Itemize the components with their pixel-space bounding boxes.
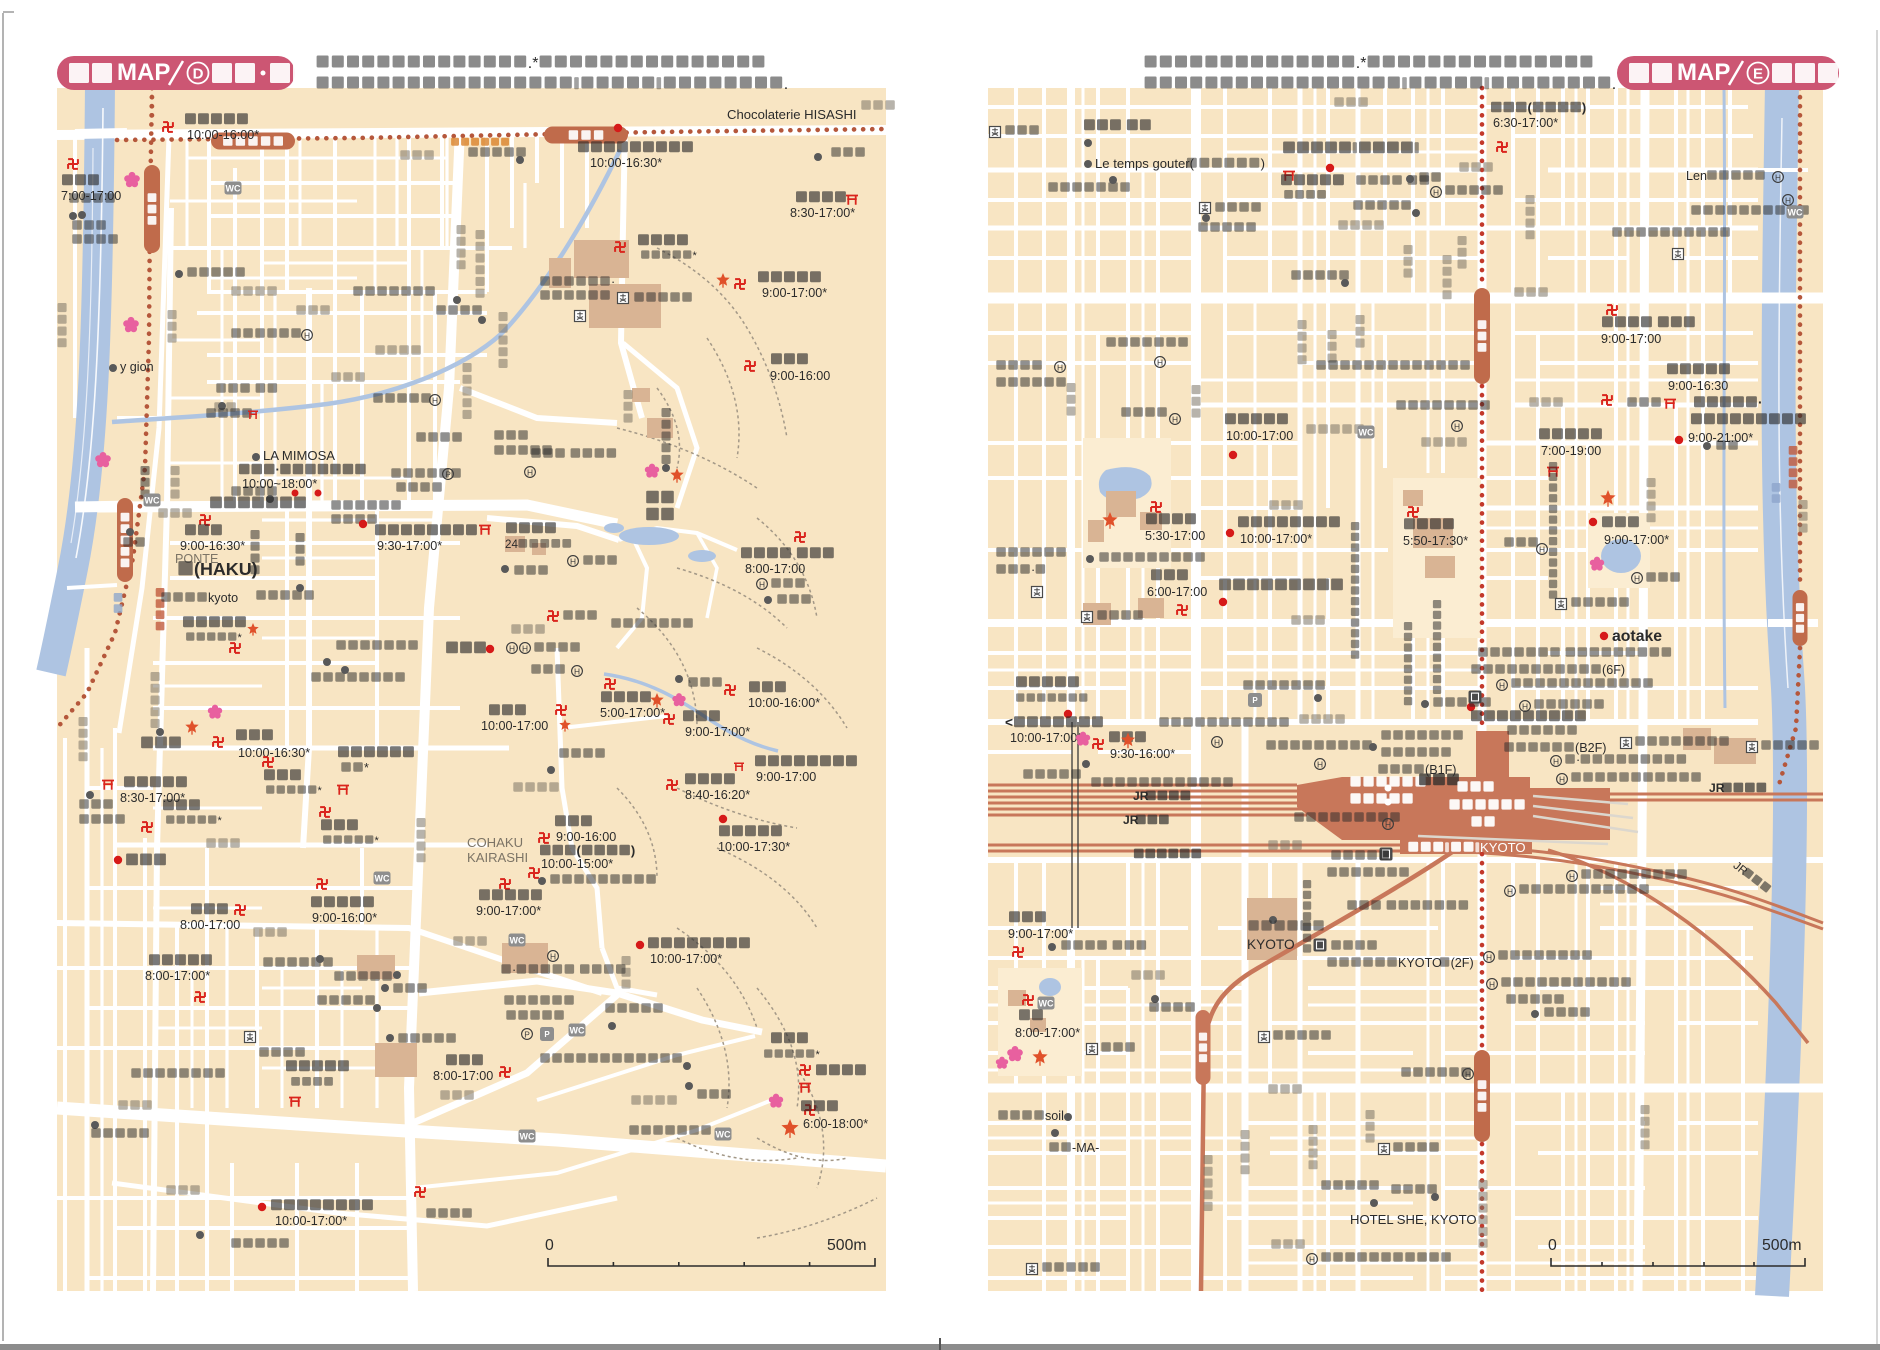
svg-text:9:00-16:00: 9:00-16:00: [770, 369, 830, 383]
svg-text:H: H: [1569, 871, 1575, 881]
svg-text:6:00-18:00*: 6:00-18:00*: [803, 1117, 868, 1131]
svg-text:KAIRASHI: KAIRASHI: [467, 850, 528, 865]
svg-text:9:00-17:00*: 9:00-17:00*: [1604, 533, 1669, 547]
svg-text:H: H: [1317, 759, 1323, 769]
svg-text:H: H: [1785, 195, 1791, 205]
svg-text:H: H: [432, 395, 438, 405]
svg-text:(2F): (2F): [1451, 956, 1474, 970]
svg-text:E: E: [1753, 66, 1763, 83]
svg-text:·: ·: [512, 963, 516, 977]
svg-text:9:30-16:00*: 9:30-16:00*: [1110, 747, 1175, 761]
svg-text:9:30-17:00*: 9:30-17:00*: [377, 539, 442, 553]
svg-text:H: H: [1559, 774, 1565, 784]
svg-text:8:00-17:00: 8:00-17:00: [745, 562, 805, 576]
svg-text:H: H: [759, 579, 765, 589]
svg-text:(6F): (6F): [1602, 663, 1625, 677]
svg-text:LA MIMOSA: LA MIMOSA: [263, 448, 335, 463]
svg-text:P: P: [1252, 696, 1258, 705]
svg-text:): ): [1261, 156, 1265, 171]
svg-text:MAP: MAP: [1677, 59, 1730, 86]
svg-text:kyoto: kyoto: [208, 591, 238, 605]
svg-text:9:00-16:30*: 9:00-16:30*: [180, 539, 245, 553]
svg-text:P: P: [524, 1029, 530, 1039]
svg-text:9:00-16:00: 9:00-16:00: [556, 830, 616, 844]
svg-text:10:00-17:00*: 10:00-17:00*: [650, 952, 722, 966]
svg-text:H: H: [1385, 819, 1391, 829]
svg-text:y gion: y gion: [120, 360, 154, 374]
svg-text:*: *: [375, 835, 380, 847]
svg-text:9:00-16:00*: 9:00-16:00*: [312, 911, 377, 925]
svg-text:10:00-16:30*: 10:00-16:30*: [238, 746, 310, 760]
svg-text:8:00-17:00*: 8:00-17:00*: [1015, 1026, 1080, 1040]
svg-text:10:00-17:00*: 10:00-17:00*: [275, 1214, 347, 1228]
svg-text:*: *: [218, 815, 223, 827]
svg-text:H: H: [1775, 172, 1781, 182]
svg-text:.*: .*: [1356, 55, 1367, 72]
svg-text:Le temps gouter(: Le temps gouter(: [1095, 156, 1195, 171]
svg-text:<: <: [1005, 715, 1013, 730]
svg-text:*: *: [238, 632, 243, 644]
svg-text:8:30-17:00*: 8:30-17:00*: [120, 791, 185, 805]
svg-text:H: H: [1522, 701, 1528, 711]
svg-text:8:30-17:00*: 8:30-17:00*: [790, 206, 855, 220]
svg-text:H: H: [509, 643, 515, 653]
svg-text:): ): [631, 843, 635, 858]
svg-text:9:00-17:00*: 9:00-17:00*: [1008, 927, 1073, 941]
svg-text:500m: 500m: [1762, 1237, 1802, 1254]
svg-text:COHAKU: COHAKU: [467, 835, 523, 850]
svg-text:10:00~18:00*: 10:00~18:00*: [242, 477, 317, 491]
svg-text:·: ·: [1031, 563, 1035, 577]
svg-text:·: ·: [611, 275, 615, 289]
svg-text:5:50-17:30*: 5:50-17:30*: [1403, 534, 1468, 548]
svg-text:.*: .*: [528, 55, 539, 72]
svg-text:WC: WC: [375, 874, 390, 884]
svg-text:WC: WC: [145, 496, 160, 506]
svg-text:D: D: [193, 66, 204, 83]
svg-text:): ): [1582, 100, 1586, 115]
svg-text:WC: WC: [570, 1026, 585, 1036]
svg-text:WC: WC: [716, 1130, 731, 1140]
svg-text:WC: WC: [1359, 428, 1374, 438]
svg-text:H: H: [1433, 187, 1439, 197]
svg-text:9:00-17:00*: 9:00-17:00*: [476, 904, 541, 918]
svg-text:H: H: [574, 666, 580, 676]
svg-text:·: ·: [1576, 753, 1580, 767]
svg-text:-MA-: -MA-: [1072, 1141, 1099, 1155]
svg-text:Chocolaterie HISASHI: Chocolaterie HISASHI: [727, 107, 857, 122]
svg-text:10:00-15:00*: 10:00-15:00*: [541, 857, 613, 871]
svg-text:H: H: [1499, 680, 1505, 690]
svg-text:5:30-17:00: 5:30-17:00: [1145, 529, 1205, 543]
svg-text:H: H: [1539, 544, 1545, 554]
svg-text:H: H: [1454, 421, 1460, 431]
svg-text:10:00-16:30*: 10:00-16:30*: [590, 156, 662, 170]
svg-text:H: H: [550, 951, 556, 961]
svg-text:WC: WC: [510, 936, 525, 946]
svg-text:9:00-17:00*: 9:00-17:00*: [762, 286, 827, 300]
svg-text:(: (: [1528, 100, 1533, 115]
svg-text:10:00-17:30*: 10:00-17:30*: [718, 840, 790, 854]
svg-text:9:00-17:00: 9:00-17:00: [756, 770, 816, 784]
svg-text:9:00-17:00*: 9:00-17:00*: [685, 725, 750, 739]
svg-text:H: H: [1489, 979, 1495, 989]
svg-text:9:00-17:00: 9:00-17:00: [1601, 332, 1661, 346]
svg-text:8:00-17:00: 8:00-17:00: [433, 1069, 493, 1083]
svg-text:·: ·: [276, 462, 280, 477]
svg-text:10:00-17:00: 10:00-17:00: [481, 719, 548, 733]
svg-text:WC: WC: [1039, 999, 1054, 1009]
svg-text:WC: WC: [226, 184, 241, 194]
svg-text:P: P: [445, 469, 451, 479]
svg-text:H: H: [1309, 1254, 1315, 1264]
svg-text:.: .: [1612, 76, 1616, 93]
svg-text:10:00-16:00*: 10:00-16:00*: [187, 128, 259, 142]
svg-text:0: 0: [1548, 1237, 1557, 1254]
svg-text:5:00-17:00*: 5:00-17:00*: [600, 706, 665, 720]
svg-text:MAP: MAP: [117, 59, 170, 86]
svg-text:*: *: [364, 761, 369, 775]
svg-text:10:00-16:00*: 10:00-16:00*: [748, 696, 820, 710]
svg-text:Len: Len: [1686, 169, 1707, 183]
svg-text:WC: WC: [520, 1132, 535, 1142]
svg-text:*: *: [816, 1049, 821, 1061]
svg-text:aotake: aotake: [1612, 628, 1662, 645]
svg-text:H: H: [1634, 573, 1640, 583]
svg-text:H: H: [1157, 357, 1163, 367]
svg-text:P: P: [544, 1030, 550, 1039]
svg-text:8:00-17:00: 8:00-17:00: [180, 918, 240, 932]
svg-text:24: 24: [505, 538, 518, 551]
svg-text:H: H: [1553, 756, 1559, 766]
svg-text:H: H: [522, 643, 528, 653]
svg-text:0: 0: [545, 1237, 554, 1254]
svg-text:8:00-17:00*: 8:00-17:00*: [145, 969, 210, 983]
svg-text:H: H: [304, 330, 310, 340]
svg-text:8:40-16:20*: 8:40-16:20*: [685, 788, 750, 802]
svg-text:H: H: [1172, 414, 1178, 424]
svg-text:(HAKU): (HAKU): [194, 559, 258, 579]
svg-text:(: (: [577, 843, 582, 858]
svg-text:10:00-17:00*: 10:00-17:00*: [1240, 532, 1312, 546]
svg-text:10:00-17:00*: 10:00-17:00*: [1010, 731, 1082, 745]
svg-text:KYOTO: KYOTO: [1247, 937, 1295, 952]
svg-text:H: H: [1486, 952, 1492, 962]
svg-text:9:00-16:30: 9:00-16:30: [1668, 379, 1728, 393]
svg-text:KYOTO: KYOTO: [1480, 840, 1526, 855]
svg-text:WC: WC: [1788, 208, 1803, 218]
svg-text:*: *: [693, 250, 698, 262]
svg-text:6:00-17:00: 6:00-17:00: [1147, 585, 1207, 599]
svg-text:*: *: [318, 785, 323, 797]
svg-text:H: H: [1214, 737, 1220, 747]
svg-text:H: H: [570, 556, 576, 566]
svg-text:HOTEL SHE, KYOTO: HOTEL SHE, KYOTO: [1350, 1212, 1477, 1227]
svg-text:KYOTO: KYOTO: [1398, 956, 1442, 970]
svg-text:H: H: [1465, 1069, 1471, 1079]
svg-text:10:00-17:00: 10:00-17:00: [1226, 429, 1293, 443]
svg-text:.: .: [784, 76, 788, 93]
svg-text:H: H: [1507, 886, 1513, 896]
svg-text:6:30-17:00*: 6:30-17:00*: [1493, 116, 1558, 130]
svg-text:soil: soil: [1045, 1109, 1064, 1123]
svg-text:7:00-19:00: 7:00-19:00: [1541, 444, 1601, 458]
svg-text:H: H: [1057, 362, 1063, 372]
svg-text:500m: 500m: [827, 1237, 867, 1254]
svg-text:H: H: [527, 467, 533, 477]
svg-text:·: ·: [1758, 395, 1763, 410]
